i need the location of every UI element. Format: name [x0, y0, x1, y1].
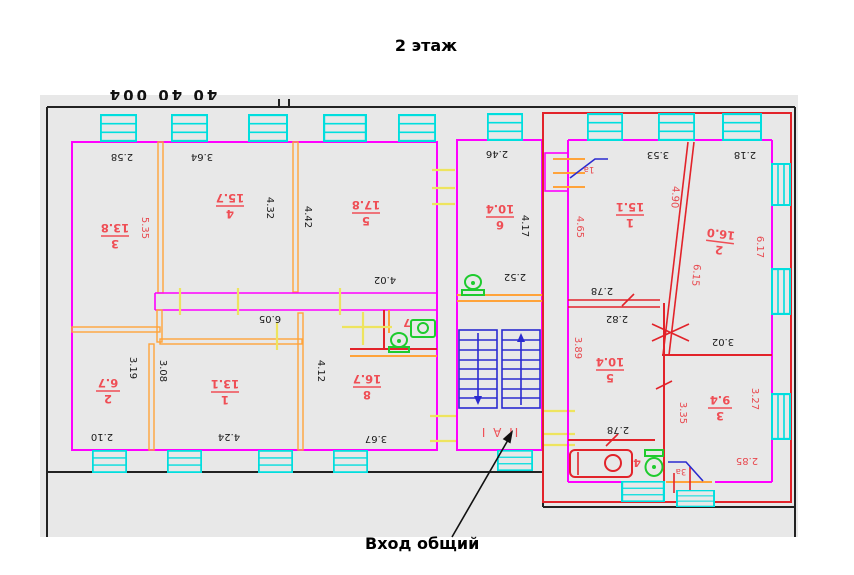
- svg-text:17.8: 17.8: [352, 198, 380, 212]
- svg-text:5: 5: [606, 371, 614, 385]
- svg-text:15.7: 15.7: [216, 191, 244, 205]
- dim: 3.19: [127, 357, 138, 379]
- dim: 2.78: [607, 424, 629, 435]
- dim: 2.78: [591, 285, 613, 296]
- entrance-label: Вход общий: [365, 534, 479, 553]
- dim-red: 3.35: [677, 402, 688, 424]
- dim-red: 6.15: [689, 264, 702, 287]
- dim: 2.58: [111, 151, 133, 162]
- dim-red: 4.90: [668, 186, 680, 209]
- svg-text:8: 8: [363, 388, 371, 402]
- dim-red: 4.65: [574, 216, 585, 238]
- dim-red: 3.89: [572, 337, 583, 359]
- entrance-door: [498, 451, 532, 470]
- dim: 2.46: [486, 148, 508, 159]
- dim: 2.18: [734, 149, 756, 160]
- svg-text:2: 2: [104, 392, 112, 406]
- dim: 3.02: [712, 336, 734, 347]
- svg-text:6.7: 6.7: [98, 376, 118, 390]
- svg-text:10.4: 10.4: [596, 355, 624, 369]
- dim-red: 2.85: [736, 455, 758, 466]
- dim: 3.64: [191, 151, 213, 162]
- svg-text:1: 1: [626, 216, 634, 230]
- svg-text:6: 6: [496, 218, 504, 232]
- dim-red: 6.17: [754, 236, 765, 258]
- wc-label-4: 4: [633, 456, 641, 469]
- svg-text:4: 4: [633, 456, 641, 469]
- svg-text:13.1: 13.1: [211, 377, 239, 391]
- dim: 6.05: [259, 313, 281, 324]
- dim: 3.67: [365, 433, 387, 444]
- door-1a-label: 1а: [584, 164, 595, 174]
- svg-text:7: 7: [403, 316, 411, 329]
- svg-text:10.4: 10.4: [486, 202, 514, 216]
- dim: 2.52: [504, 271, 526, 282]
- dim: 4.24: [218, 431, 240, 442]
- dim: 4.02: [374, 274, 396, 285]
- svg-text:16.7: 16.7: [353, 372, 381, 386]
- svg-text:13.8: 13.8: [101, 221, 129, 235]
- page-title: 2 этаж: [395, 36, 457, 55]
- dim: 4.42: [302, 206, 313, 228]
- door-3a-label: 3а: [676, 466, 687, 476]
- dim: 2.10: [91, 431, 113, 442]
- dim: 3.08: [157, 360, 168, 382]
- dim: 4.32: [264, 197, 275, 219]
- dim: 4.17: [519, 215, 530, 237]
- floor-plan: 2 этаж 40 40 004: [0, 0, 854, 575]
- svg-text:5: 5: [362, 214, 370, 228]
- svg-text:1: 1: [221, 393, 229, 407]
- dim-red: 3.27: [749, 388, 760, 410]
- svg-text:3: 3: [111, 237, 119, 251]
- svg-text:2: 2: [714, 243, 724, 258]
- svg-text:9.4: 9.4: [710, 393, 730, 407]
- dim-red: 5.35: [139, 217, 150, 239]
- wc-label-7: 7: [403, 316, 411, 329]
- svg-text:4: 4: [226, 207, 234, 221]
- dim: 2.82: [606, 313, 628, 324]
- floor-plan-page: 2 этаж 40 40 004: [0, 0, 854, 575]
- svg-text:3: 3: [716, 409, 724, 423]
- dim: 4.12: [315, 360, 326, 382]
- dim: 3.53: [647, 149, 669, 160]
- svg-text:15.1: 15.1: [616, 200, 644, 214]
